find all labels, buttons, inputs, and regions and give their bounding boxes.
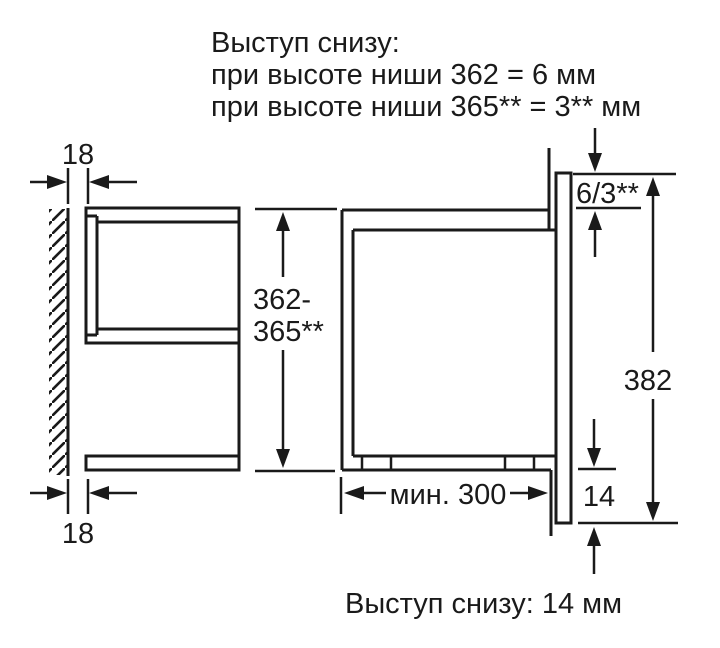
arrow-left-icon xyxy=(344,486,364,500)
dim-label-front-height: 382 xyxy=(624,365,672,397)
arrow-left-icon xyxy=(89,175,109,189)
cabinet-side-view xyxy=(86,208,239,470)
dim-bottom-overhang: 14 xyxy=(578,419,616,574)
appliance-side-view xyxy=(342,148,571,536)
arrow-up-icon xyxy=(646,177,660,196)
dim-label-gap-bottom: 18 xyxy=(62,518,94,550)
note-line-3: при высоте ниши 365** = 3** мм xyxy=(211,91,641,123)
diagram-canvas: Выступ снизу: при высоте ниши 362 = 6 мм… xyxy=(0,0,720,648)
cabinet-bottom-bar xyxy=(86,456,239,470)
note-line-2: при высоте ниши 362 = 6 мм xyxy=(211,59,596,91)
arrow-up-icon xyxy=(587,527,601,546)
arrow-up-icon xyxy=(276,212,290,231)
wall-hatching xyxy=(49,209,67,475)
note-line-1: Выступ снизу: xyxy=(211,27,400,59)
dim-label-top-protrusion: 6/3** xyxy=(576,178,639,210)
dim-label-gap-top: 18 xyxy=(62,139,94,171)
installation-note: Выступ снизу: при высоте ниши 362 = 6 мм… xyxy=(211,27,641,123)
arrow-up-icon xyxy=(588,211,602,230)
appliance-front-frame xyxy=(556,173,571,523)
cabinet-upper-box xyxy=(86,208,239,343)
dim-label-min-depth: мин. 300 xyxy=(390,479,507,511)
installation-diagram: Выступ снизу: при высоте ниши 362 = 6 мм… xyxy=(0,0,720,648)
arrow-right-icon xyxy=(47,175,67,189)
dim-label-bottom-overhang: 14 xyxy=(583,481,615,513)
note-pointer-arrow xyxy=(588,128,602,172)
bottom-note: Выступ снизу: 14 мм xyxy=(345,588,622,620)
dim-label-niche-height-1: 362- xyxy=(253,284,311,316)
dim-wall-gap-bottom: 18 xyxy=(30,479,137,550)
dim-wall-gap-top: 18 xyxy=(30,139,137,204)
note-bottom-text: Выступ снизу: 14 мм xyxy=(345,588,622,620)
dim-top-protrusion: 6/3** xyxy=(573,174,676,257)
dim-label-niche-height-2: 365** xyxy=(253,316,324,348)
arrow-left-icon xyxy=(89,486,109,500)
arrow-right-icon xyxy=(528,486,548,500)
dim-min-depth: мин. 300 xyxy=(341,477,548,514)
arrow-down-icon xyxy=(587,448,601,467)
arrow-down-icon xyxy=(588,153,602,172)
arrow-down-icon xyxy=(276,449,290,468)
dim-niche-height: 362- 365** xyxy=(253,209,337,471)
arrow-right-icon xyxy=(47,486,67,500)
arrow-down-icon xyxy=(646,502,660,521)
wall-section xyxy=(49,208,68,476)
